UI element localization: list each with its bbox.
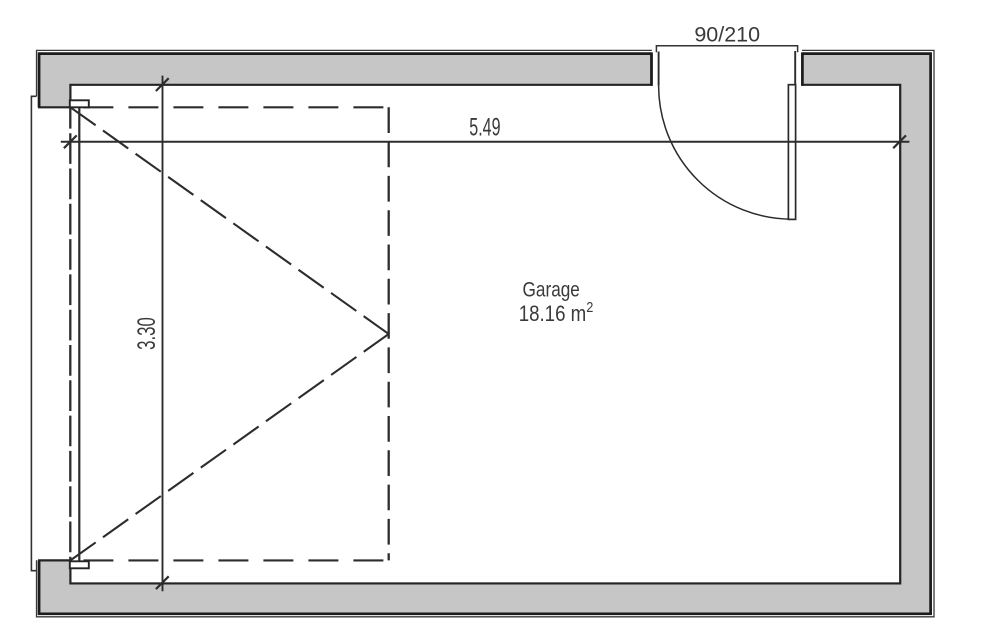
svg-text:3.30: 3.30 <box>133 317 161 350</box>
svg-text:5.49: 5.49 <box>469 114 500 141</box>
svg-text:Garage: Garage <box>523 278 580 302</box>
svg-text:18.16 m2: 18.16 m2 <box>519 298 594 326</box>
svg-text:90/210: 90/210 <box>694 23 760 47</box>
